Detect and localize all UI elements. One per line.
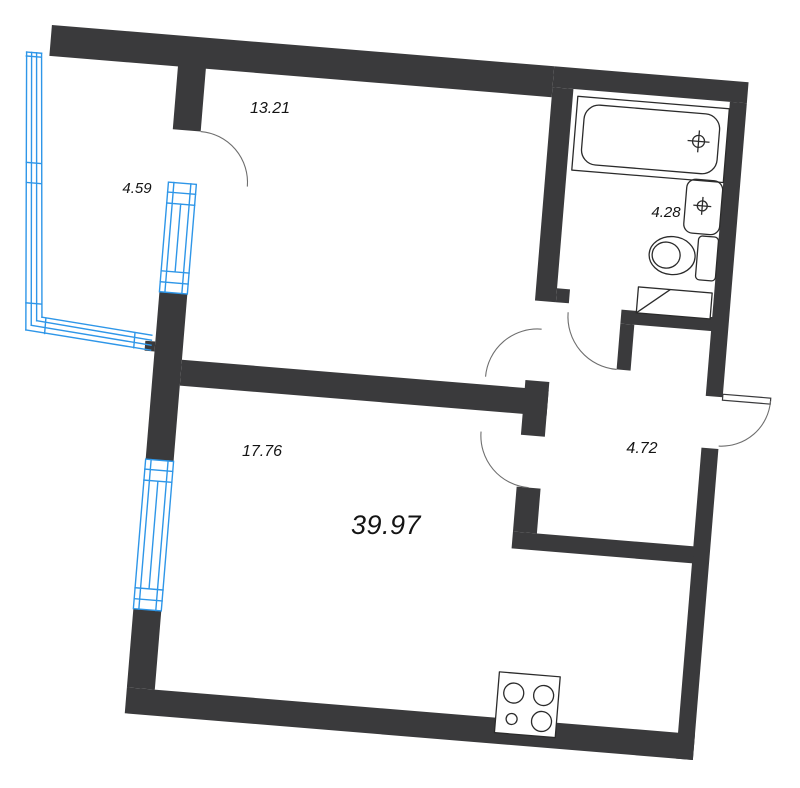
balcony-glazing — [3, 52, 174, 350]
area-label-hallway: 4.72 — [626, 440, 657, 457]
sink-symbol — [683, 179, 723, 236]
toilet-tank — [695, 236, 719, 281]
area-label-total: 39.97 — [351, 510, 422, 540]
window-room-1 — [159, 182, 196, 294]
bathtub-inner — [580, 104, 720, 175]
faucet-crosshair-icon — [693, 196, 712, 215]
door-arc-balcony — [197, 132, 252, 187]
toilet-bowl-inner — [651, 241, 681, 269]
washing-machine-symbol — [636, 287, 712, 319]
washer-outline — [636, 287, 712, 319]
wall-left-upper — [173, 64, 206, 131]
wall-top-right — [553, 66, 749, 103]
stove-symbol — [494, 672, 560, 738]
wall-bathroom-jamb — [556, 288, 570, 303]
area-label-room-1: 13.21 — [250, 100, 290, 117]
window-mullions — [159, 182, 196, 294]
wall-left-lower — [127, 609, 161, 690]
plan-rotated-group — [0, 23, 796, 764]
entrance-door-arc — [719, 397, 771, 450]
window-living-room — [133, 459, 173, 611]
wall-hall-bottom — [512, 531, 695, 563]
drain-crosshair-icon — [687, 130, 711, 154]
wall-top-left — [49, 25, 554, 97]
bathtub-symbol — [572, 96, 730, 182]
stove-outline — [494, 672, 560, 738]
wall-middle-stub — [521, 380, 549, 437]
floor-plan-svg: 13.21 4.59 4.28 17.76 4.72 39.97 — [0, 0, 800, 788]
toilet-bowl — [648, 235, 697, 277]
wall-bathroom-return — [617, 324, 635, 371]
area-label-bathroom: 4.28 — [651, 204, 681, 221]
wall-bathroom-left — [535, 87, 573, 302]
walls-group — [0, 25, 749, 760]
wall-bottom — [125, 687, 695, 760]
wall-right-lower — [676, 448, 719, 760]
wall-hall-left — [513, 487, 541, 534]
bathroom-fixtures — [561, 96, 730, 319]
entrance-door-leaf — [722, 394, 770, 404]
door-arc-living-room — [477, 432, 533, 488]
balcony-glazing-left-lines — [4, 52, 64, 331]
area-label-balcony: 4.59 — [122, 180, 152, 197]
door-arc-room-1 — [486, 325, 542, 381]
door-arc-bathroom — [564, 312, 621, 369]
floor-plan-page: 13.21 4.59 4.28 17.76 4.72 39.97 — [0, 0, 800, 788]
area-labels-group: 13.21 4.59 4.28 17.76 4.72 39.97 — [122, 100, 681, 540]
toilet-symbol — [647, 232, 718, 281]
area-label-living-room: 17.76 — [242, 443, 282, 460]
sink-outline — [683, 179, 723, 236]
wall-middle — [180, 360, 549, 416]
